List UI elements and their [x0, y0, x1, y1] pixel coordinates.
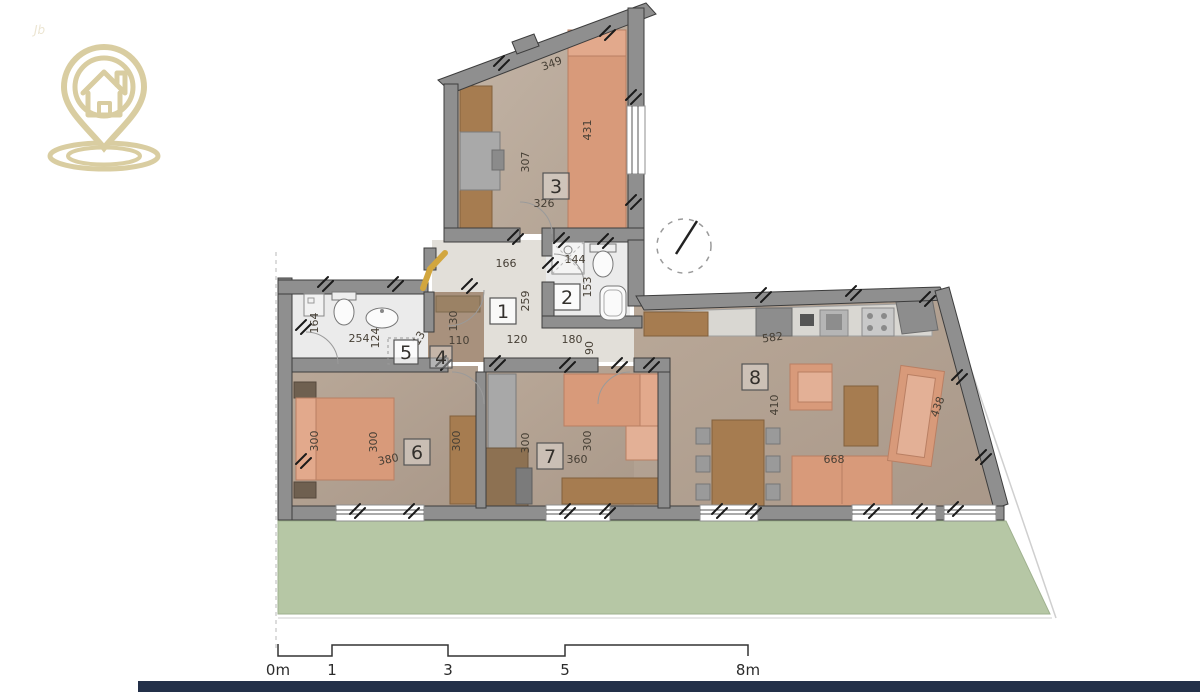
toilet [593, 251, 613, 277]
svg-text:5: 5 [400, 342, 412, 364]
room-2-label: 2 [554, 284, 580, 310]
dim-label: 164 [308, 313, 321, 334]
footer-bar [138, 681, 1200, 692]
wall-room3-left [444, 84, 458, 240]
room-4-label: 4 [430, 346, 452, 369]
floor-plan-svg: Jb [0, 0, 1200, 692]
dim-label: 166 [496, 257, 517, 270]
dim-label: 410 [768, 395, 781, 416]
room-8-label: 8 [742, 364, 768, 390]
chair [696, 428, 710, 444]
house-location-logo [50, 47, 158, 169]
chair [766, 484, 780, 500]
dim-label: 144 [565, 253, 586, 266]
toilet [334, 299, 354, 325]
chair [696, 456, 710, 472]
scale-label: 1 [327, 661, 337, 679]
shelf [516, 468, 532, 504]
scale-label: 5 [560, 661, 570, 679]
dim-label: 153 [581, 277, 594, 298]
armchair [626, 426, 658, 460]
room-6-label: 6 [404, 439, 430, 465]
wall-bath5-right [424, 292, 434, 332]
dim-label: 360 [567, 453, 588, 466]
hall-cabinet [436, 296, 480, 312]
dim-label: 431 [581, 120, 594, 141]
dim-label: 110 [449, 334, 470, 347]
watermark-text: Jb [32, 23, 46, 37]
room-3-label: 3 [543, 173, 569, 199]
room-5-label: 5 [394, 340, 418, 364]
svg-text:3: 3 [550, 176, 562, 198]
kitchen-cabinet [644, 312, 708, 336]
dim-label: 300 [519, 433, 532, 454]
chair [766, 428, 780, 444]
dim-label: 300 [581, 431, 594, 452]
wall-room6-7 [476, 372, 486, 508]
svg-text:7: 7 [544, 446, 556, 468]
svg-text:4: 4 [435, 347, 447, 369]
dim-label: 180 [562, 333, 583, 346]
chair [696, 484, 710, 500]
bed [568, 30, 626, 232]
sink-basin [826, 314, 842, 330]
room-7-label: 7 [537, 443, 563, 469]
scale-bar: 0m 1 3 5 8m [266, 644, 760, 679]
wall-bath2-bottom [542, 316, 642, 328]
small-appliance [800, 314, 814, 326]
wall-left [278, 278, 292, 520]
bed-pillow [640, 374, 658, 426]
coffee-table [844, 386, 878, 446]
dim-label: 300 [308, 431, 321, 452]
dim-label: 90 [583, 341, 596, 355]
dim-label: 300 [367, 432, 380, 453]
dim-label: 300 [450, 431, 463, 452]
dim-label: 254 [349, 332, 370, 345]
scale-label: 0m [266, 661, 290, 679]
desk [562, 478, 668, 504]
dining-table [712, 420, 764, 510]
dim-label: 130 [447, 311, 460, 332]
terrace-garden [278, 521, 1050, 614]
room-1-label: 1 [490, 298, 516, 324]
wardrobe [488, 374, 516, 448]
dim-label: 259 [519, 291, 532, 312]
svg-text:6: 6 [411, 442, 423, 464]
dim-label: 307 [519, 152, 532, 173]
dim-label: 124 [369, 328, 382, 349]
dim-label: 668 [824, 453, 845, 466]
svg-text:2: 2 [561, 287, 573, 309]
wall-mid-a [292, 358, 448, 372]
nightstand [294, 382, 316, 398]
scale-label: 8m [736, 661, 760, 679]
svg-text:1: 1 [497, 301, 509, 323]
nightstand [294, 482, 316, 498]
tall-cabinet [896, 298, 938, 334]
svg-text:8: 8 [749, 367, 761, 389]
stove [862, 308, 894, 336]
dim-label: 120 [507, 333, 528, 346]
loveseat-cushion [798, 372, 832, 402]
wall-room3-right-top [628, 8, 644, 108]
wall-room7-8 [658, 372, 670, 508]
orientation-symbol [657, 219, 711, 273]
chair [766, 456, 780, 472]
scale-label: 3 [443, 661, 453, 679]
desk-chair [492, 150, 504, 170]
